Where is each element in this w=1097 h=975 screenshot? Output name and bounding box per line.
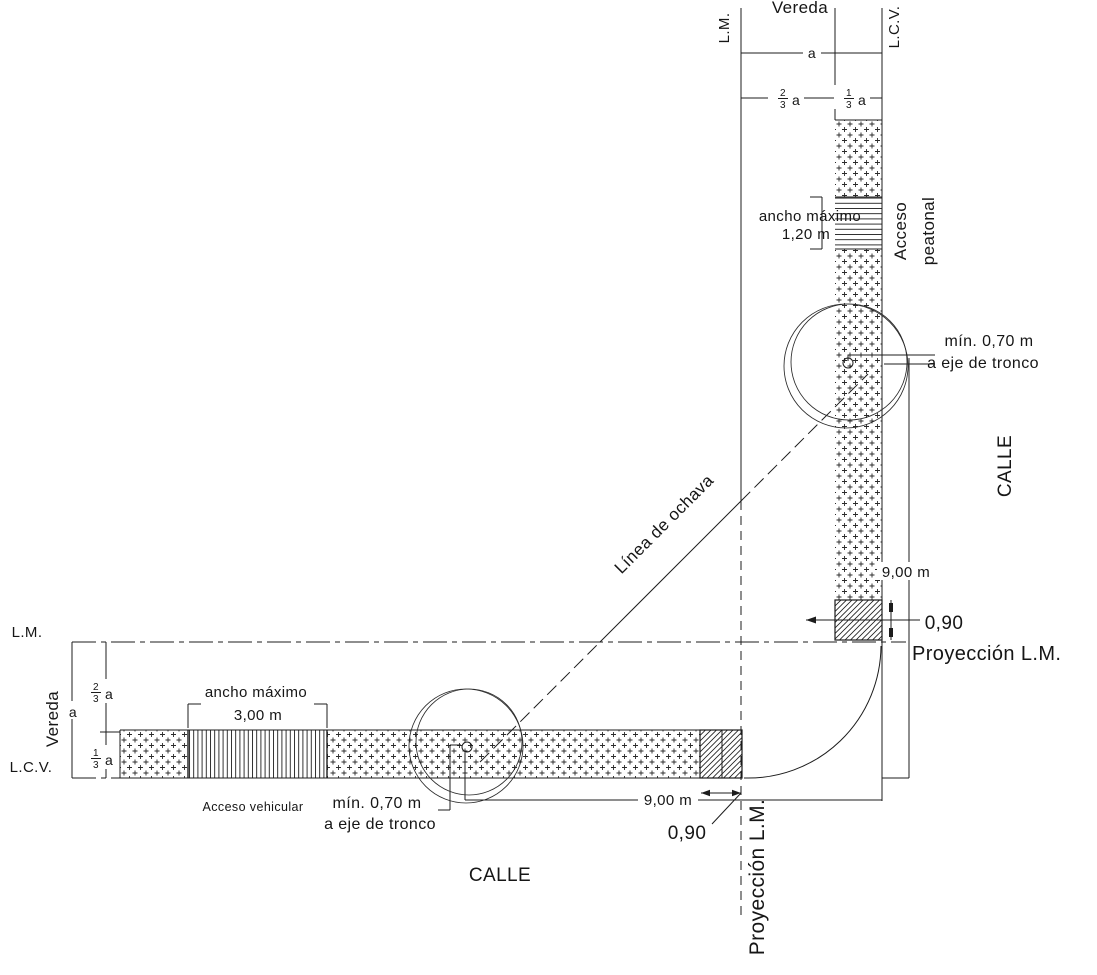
annotations: Vereda L.M. L.C.V. a 2 3 a 1 3 a ancho m…: [10, 0, 1062, 955]
vertical-sidewalk-hatch: [835, 120, 882, 640]
frac-13-top-den: 3: [846, 100, 852, 111]
label-calle-right: CALLE: [995, 435, 1016, 497]
label-calle-bottom: CALLE: [469, 865, 531, 886]
curb-corner-arc: [744, 646, 881, 778]
dim-a-top-label: a: [808, 45, 816, 61]
frac-23-top-num: 2: [780, 88, 786, 99]
frac-13-top-num: 1: [846, 88, 852, 99]
label-acceso-peatonal-1: Acceso: [891, 202, 910, 260]
leader-090-bottom: [712, 793, 741, 824]
label-eje-tronco-bottom: a eje de tronco: [324, 816, 436, 833]
plan-drawing-canvas: Vereda L.M. L.C.V. a 2 3 a 1 3 a ancho m…: [0, 0, 1097, 975]
vehicular-access-band: [188, 730, 327, 778]
label-ancho-maximo-bottom: ancho máximo: [205, 684, 307, 701]
label-lm-left: L.M.: [12, 624, 43, 641]
frac-13-left-a: a: [105, 752, 113, 768]
frac-23-left-a: a: [105, 686, 113, 702]
label-linea-ochava: Línea de ochava: [611, 471, 718, 578]
label-lm-top: L.M.: [716, 13, 733, 44]
label-min-070-bottom: mín. 0,70 m: [333, 795, 422, 812]
label-ancho-maximo-top: ancho máximo: [759, 208, 861, 225]
arrowhead-090-bottom-right: [732, 790, 741, 796]
tick-090-right-top: [889, 603, 893, 612]
frac-23-left-num: 2: [93, 682, 99, 693]
frac-23-top-den: 3: [780, 100, 786, 111]
frac-13-top-a: a: [858, 92, 866, 108]
label-acceso-peatonal-2: peatonal: [919, 197, 938, 265]
label-eje-tronco-top: a eje de tronco: [927, 355, 1039, 372]
dim-090-right-label: 0,90: [925, 613, 964, 634]
tick-090-right-bottom: [889, 628, 893, 637]
label-vereda-top: Vereda: [772, 0, 828, 17]
label-min-070-top: mín. 0,70 m: [945, 333, 1034, 350]
corner-plan-svg: Vereda L.M. L.C.V. a 2 3 a 1 3 a ancho m…: [0, 0, 1097, 975]
paved-band-top: [835, 120, 882, 197]
label-proyeccion-lm-right: Proyección L.M.: [912, 643, 1061, 665]
dim-300-label: 3,00 m: [234, 707, 282, 724]
label-vereda-left: Vereda: [43, 691, 62, 747]
horizontal-sidewalk-hatch: [120, 730, 742, 778]
label-acceso-vehicular: Acceso vehicular: [203, 800, 304, 814]
label-proyeccion-lm-bottom: Proyección L.M.: [746, 799, 769, 956]
ochava-and-curb: [480, 374, 881, 778]
frac-13-left-den: 3: [93, 760, 99, 771]
label-lcv-top: L.C.V.: [886, 6, 903, 49]
paved-band-mid: [835, 249, 882, 600]
frac-23-top-a: a: [792, 92, 800, 108]
corner-strip-090-horizontal: [700, 730, 742, 778]
arrowhead-090-right: [806, 617, 816, 624]
paved-band-left: [120, 730, 188, 778]
arrowhead-090-bottom-left: [701, 790, 710, 796]
frac-23-left-den: 3: [93, 694, 99, 705]
dim-900-bottom-label: 9,00 m: [644, 792, 692, 809]
frac-13-left-num: 1: [93, 748, 99, 759]
dim-a-left-label: a: [69, 704, 77, 720]
dim-120-label: 1,20 m: [782, 226, 830, 243]
label-lcv-left: L.C.V.: [10, 759, 53, 776]
dim-900-right-label: 9,00 m: [882, 564, 930, 581]
dim-090-bottom-label: 0,90: [668, 823, 707, 844]
